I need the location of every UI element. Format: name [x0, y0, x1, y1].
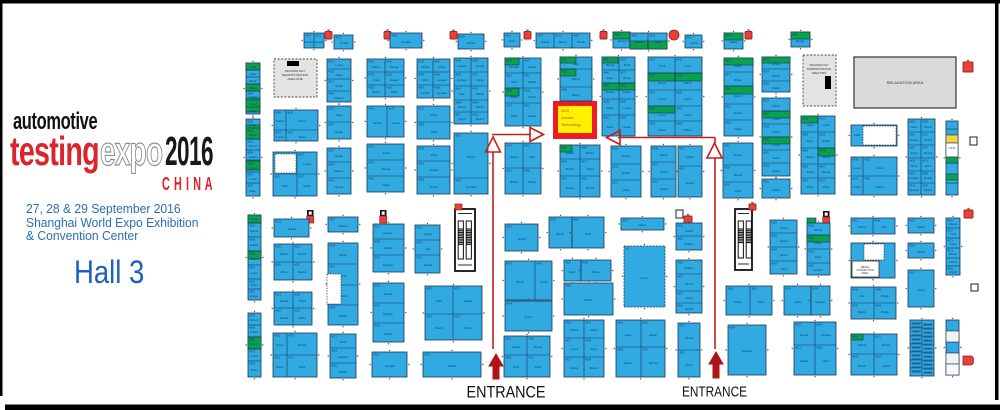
- svg-text:4051: 4051: [524, 73, 530, 77]
- svg-text:Pelmor: Pelmor: [772, 104, 781, 108]
- svg-text:4059: 4059: [771, 233, 777, 237]
- svg-text:Mersat: Mersat: [796, 39, 804, 43]
- svg-text:4081: 4081: [505, 336, 511, 340]
- svg-text:4049: 4049: [582, 260, 588, 264]
- svg-text:Mikota: Mikota: [448, 364, 456, 368]
- svg-text:Restek: Restek: [780, 239, 789, 243]
- svg-text:Lumet: Lumet: [303, 162, 311, 166]
- svg-text:4028: 4028: [550, 217, 556, 221]
- svg-text:4067: 4067: [506, 143, 512, 147]
- svg-text:Sintec: Sintec: [430, 113, 438, 117]
- svg-text:4024: 4024: [725, 86, 731, 90]
- svg-text:Ankor: Ankor: [606, 76, 613, 80]
- svg-text:4057: 4057: [328, 79, 334, 83]
- svg-text:Norel: Norel: [340, 340, 347, 344]
- svg-text:4089: 4089: [249, 325, 255, 329]
- svg-text:4062: 4062: [368, 176, 374, 180]
- svg-text:Mersat: Mersat: [734, 173, 742, 177]
- svg-text:4077: 4077: [649, 73, 655, 77]
- svg-text:4024: 4024: [763, 69, 769, 73]
- svg-text:4030: 4030: [506, 58, 512, 62]
- svg-text:Tivoli: Tivoli: [585, 232, 592, 236]
- svg-text:Dynatek: Dynatek: [466, 185, 477, 189]
- svg-text:4057: 4057: [328, 148, 334, 152]
- svg-text:Zhivan: Zhivan: [250, 217, 259, 221]
- svg-text:4061: 4061: [649, 90, 655, 94]
- svg-text:4032: 4032: [852, 303, 858, 307]
- svg-text:Ostrow: Ostrow: [800, 359, 809, 363]
- svg-text:4082: 4082: [603, 115, 609, 119]
- svg-text:4019: 4019: [472, 112, 478, 116]
- svg-text:4061: 4061: [763, 111, 769, 115]
- svg-text:4026: 4026: [555, 33, 561, 37]
- svg-text:4030: 4030: [455, 178, 461, 182]
- svg-text:4024: 4024: [676, 73, 682, 77]
- svg-text:4050: 4050: [802, 164, 808, 168]
- svg-text:Avantec: Avantec: [813, 268, 823, 272]
- svg-text:4078: 4078: [368, 72, 374, 76]
- svg-text:4051: 4051: [472, 86, 478, 90]
- svg-text:4085: 4085: [875, 287, 881, 291]
- svg-text:Kemlar: Kemlar: [339, 314, 348, 318]
- svg-text:Shanly: Shanly: [435, 326, 444, 330]
- svg-text:Ankor: Ankor: [684, 64, 691, 68]
- svg-text:4072: 4072: [612, 180, 618, 184]
- svg-text:4088: 4088: [455, 100, 461, 104]
- svg-text:4038: 4038: [585, 357, 591, 361]
- svg-text:Wolsen: Wolsen: [624, 361, 633, 365]
- svg-text:4074: 4074: [947, 238, 953, 242]
- svg-text:4002: 4002: [374, 303, 380, 307]
- svg-text:Ostrow: Ostrow: [384, 332, 393, 336]
- svg-text:Crastin: Crastin: [658, 97, 667, 101]
- svg-text:4020: 4020: [249, 361, 255, 365]
- svg-text:4046: 4046: [434, 72, 440, 76]
- svg-text:4004: 4004: [368, 59, 374, 63]
- svg-text:4045: 4045: [819, 116, 825, 120]
- svg-text:4087: 4087: [819, 164, 825, 168]
- svg-text:4040: 4040: [603, 70, 609, 74]
- svg-text:4009: 4009: [386, 85, 392, 89]
- svg-text:4032: 4032: [909, 218, 915, 222]
- svg-text:Dynatek: Dynatek: [383, 263, 394, 267]
- svg-text:4033: 4033: [565, 320, 571, 324]
- svg-text:4057: 4057: [328, 122, 334, 126]
- svg-text:4072: 4072: [679, 146, 685, 150]
- svg-text:4029: 4029: [763, 163, 769, 167]
- svg-text:Pelmor: Pelmor: [606, 90, 615, 94]
- svg-text:Ankor: Ankor: [949, 242, 956, 246]
- svg-text:4008: 4008: [802, 116, 808, 120]
- svg-text:Qintar: Qintar: [882, 364, 889, 368]
- svg-text:4078: 4078: [368, 144, 374, 148]
- svg-text:Qintar: Qintar: [686, 155, 693, 159]
- svg-text:Hintek: Hintek: [335, 130, 343, 134]
- svg-text:4082: 4082: [864, 157, 870, 161]
- svg-text:4083: 4083: [455, 133, 461, 137]
- svg-text:Shanly: Shanly: [528, 180, 537, 184]
- svg-text:Jinwei: Jinwei: [392, 121, 400, 125]
- svg-text:4067: 4067: [524, 58, 530, 62]
- svg-text:AREA: AREA: [861, 271, 868, 275]
- svg-text:Ostrow: Ostrow: [924, 188, 933, 192]
- svg-text:Velor: Velor: [881, 225, 887, 229]
- svg-text:Tarnow: Tarnow: [335, 185, 344, 189]
- svg-text:Brevik: Brevik: [635, 40, 643, 44]
- svg-text:Dovel: Dovel: [250, 102, 257, 106]
- svg-text:Brevik: Brevik: [622, 171, 630, 175]
- svg-text:4083: 4083: [418, 85, 424, 89]
- svg-text:4076: 4076: [426, 286, 432, 290]
- svg-text:4023: 4023: [454, 286, 460, 290]
- svg-text:4014: 4014: [455, 86, 461, 90]
- svg-text:Pelmor: Pelmor: [250, 318, 259, 322]
- svg-text:4004: 4004: [328, 91, 334, 95]
- svg-text:Norel: Norel: [795, 300, 802, 304]
- svg-text:Zhivan: Zhivan: [734, 78, 743, 82]
- svg-text:4068: 4068: [247, 119, 253, 123]
- svg-text:4038: 4038: [677, 260, 683, 264]
- svg-text:4086: 4086: [565, 283, 571, 287]
- svg-text:4045: 4045: [763, 137, 769, 141]
- svg-text:Pelmor: Pelmor: [584, 298, 593, 302]
- svg-text:Qintar: Qintar: [622, 188, 629, 192]
- svg-text:4045: 4045: [649, 106, 655, 110]
- svg-text:4017: 4017: [565, 338, 571, 342]
- svg-text:4007: 4007: [506, 261, 512, 265]
- svg-text:4001: 4001: [677, 223, 683, 227]
- svg-text:Dovel: Dovel: [685, 97, 692, 101]
- svg-text:4071: 4071: [819, 178, 825, 182]
- svg-text:4088: 4088: [506, 88, 512, 92]
- svg-text:4048: 4048: [816, 345, 822, 349]
- svg-text:4078: 4078: [388, 106, 394, 110]
- svg-text:4087: 4087: [294, 262, 300, 266]
- svg-text:4019: 4019: [524, 103, 530, 107]
- svg-text:4077: 4077: [725, 72, 731, 76]
- svg-text:Hintek: Hintek: [570, 366, 578, 370]
- svg-text:4064: 4064: [729, 325, 735, 329]
- svg-text:4050: 4050: [275, 262, 281, 266]
- svg-text:4035: 4035: [652, 146, 658, 150]
- svg-text:Pelmor: Pelmor: [250, 229, 259, 233]
- svg-text:Ostrow: Ostrow: [510, 155, 519, 159]
- svg-text:Restek: Restek: [421, 65, 430, 69]
- svg-text:Tarnow: Tarnow: [280, 299, 289, 303]
- svg-text:Hintek: Hintek: [303, 184, 311, 188]
- svg-text:Norel: Norel: [823, 185, 830, 189]
- svg-text:Kemlar: Kemlar: [384, 246, 393, 250]
- svg-text:Qintar: Qintar: [660, 170, 667, 174]
- svg-text:4041: 4041: [328, 178, 334, 182]
- svg-text:Ostrow: Ostrow: [467, 41, 476, 45]
- svg-text:Dynatek: Dynatek: [437, 91, 448, 95]
- svg-text:Brevik: Brevik: [566, 167, 574, 171]
- svg-text:4002: 4002: [909, 183, 915, 187]
- svg-text:4055: 4055: [922, 171, 928, 175]
- svg-text:Pelmor: Pelmor: [772, 74, 781, 78]
- svg-text:4036: 4036: [249, 337, 255, 341]
- svg-text:4055: 4055: [329, 305, 335, 309]
- svg-text:4059: 4059: [677, 303, 683, 307]
- svg-text:4072: 4072: [581, 159, 587, 163]
- svg-text:4039: 4039: [922, 183, 928, 187]
- svg-text:Hualon: Hualon: [566, 186, 575, 190]
- svg-text:Mikota: Mikota: [572, 77, 580, 81]
- svg-text:Dovel: Dovel: [773, 130, 780, 134]
- svg-text:4029: 4029: [922, 119, 928, 123]
- svg-text:4069: 4069: [909, 243, 915, 247]
- svg-text:4009: 4009: [418, 122, 424, 126]
- svg-text:4008: 4008: [763, 124, 769, 128]
- svg-text:4069: 4069: [852, 354, 858, 358]
- svg-text:4024: 4024: [603, 83, 609, 87]
- svg-text:Brevik: Brevik: [528, 95, 536, 99]
- svg-text:4069: 4069: [875, 303, 881, 307]
- svg-text:Norel: Norel: [781, 267, 788, 271]
- svg-text:Zhivan: Zhivan: [249, 79, 258, 83]
- svg-text:Avantec: Avantec: [457, 64, 467, 68]
- svg-text:4011: 4011: [852, 218, 858, 222]
- svg-text:Tivoli: Tivoli: [950, 232, 957, 236]
- svg-text:Tarnow: Tarnow: [373, 121, 382, 125]
- svg-text:Norel: Norel: [431, 153, 438, 157]
- svg-text:4025: 4025: [386, 72, 392, 76]
- svg-text:Tarnow: Tarnow: [822, 155, 831, 159]
- svg-text:4034: 4034: [294, 308, 300, 312]
- svg-text:Sarex: Sarex: [806, 139, 814, 143]
- svg-text:Shanly: Shanly: [586, 151, 595, 155]
- svg-text:4046: 4046: [455, 58, 461, 62]
- svg-text:4076: 4076: [416, 240, 422, 244]
- svg-text:4054: 4054: [585, 338, 591, 342]
- svg-text:4077: 4077: [763, 57, 769, 61]
- svg-text:4045: 4045: [852, 157, 858, 161]
- svg-text:Restek: Restek: [822, 170, 831, 174]
- svg-text:Lumet: Lumet: [335, 63, 343, 67]
- svg-text:Dovel: Dovel: [591, 328, 598, 332]
- svg-text:Sarex: Sarex: [335, 113, 343, 117]
- svg-text:4012: 4012: [528, 355, 534, 359]
- svg-text:Velor: Velor: [511, 80, 517, 84]
- svg-text:Ostrow: Ostrow: [528, 65, 537, 69]
- svg-text:Wolsen: Wolsen: [335, 169, 344, 173]
- svg-text:Dovel: Dovel: [639, 223, 646, 227]
- svg-text:Norel: Norel: [391, 90, 398, 94]
- svg-text:4008: 4008: [676, 90, 682, 94]
- svg-text:4080: 4080: [808, 263, 814, 267]
- svg-text:4082: 4082: [763, 150, 769, 154]
- svg-text:Tarnow: Tarnow: [298, 252, 307, 256]
- svg-text:4014: 4014: [524, 143, 530, 147]
- svg-text:Sintec: Sintec: [814, 241, 822, 245]
- svg-text:4066: 4066: [676, 121, 682, 125]
- svg-text:Crastin: Crastin: [250, 330, 259, 334]
- svg-text:Zhivan: Zhivan: [623, 76, 632, 80]
- svg-text:Sarex: Sarex: [876, 166, 884, 170]
- svg-text:4021: 4021: [315, 33, 321, 37]
- svg-text:4013: 4013: [819, 148, 825, 152]
- svg-text:4039: 4039: [374, 323, 380, 327]
- svg-text:Jinwei: Jinwei: [910, 151, 918, 155]
- svg-text:4085: 4085: [852, 334, 858, 338]
- svg-text:4055: 4055: [374, 283, 380, 287]
- svg-text:Qintar: Qintar: [917, 288, 924, 292]
- svg-text:4047: 4047: [725, 33, 731, 37]
- svg-text:4116: 4116: [854, 133, 861, 137]
- svg-text:Kemlar: Kemlar: [430, 185, 439, 189]
- svg-text:Zhivan: Zhivan: [658, 81, 667, 85]
- svg-text:Norel: Norel: [758, 300, 765, 304]
- svg-text:4009: 4009: [561, 109, 569, 113]
- svg-text:Mersat: Mersat: [949, 222, 957, 226]
- svg-text:4010: 4010: [686, 35, 692, 39]
- svg-text:Crastin: Crastin: [276, 119, 285, 123]
- svg-text:Norel: Norel: [422, 78, 429, 82]
- svg-text:4029: 4029: [819, 132, 825, 136]
- svg-text:Mikota: Mikota: [528, 80, 536, 84]
- svg-text:Velor: Velor: [436, 299, 442, 303]
- svg-text:Avantec: Avantec: [909, 176, 919, 180]
- svg-text:4062: 4062: [368, 85, 374, 89]
- svg-text:4088: 4088: [581, 145, 587, 149]
- svg-text:Lumet: Lumet: [853, 166, 861, 170]
- svg-text:4077: 4077: [620, 70, 626, 74]
- svg-text:4035: 4035: [561, 159, 567, 163]
- svg-text:Restek: Restek: [298, 270, 307, 274]
- svg-text:4088: 4088: [612, 146, 618, 150]
- svg-text:4052: 4052: [249, 223, 255, 227]
- svg-text:4050: 4050: [274, 333, 280, 337]
- svg-text:Ostrow: Ostrow: [476, 78, 485, 82]
- svg-text:Dynatek: Dynatek: [383, 312, 394, 316]
- svg-text:Hualon: Hualon: [686, 181, 695, 185]
- svg-text:Brevik: Brevik: [858, 364, 866, 368]
- svg-text:4061: 4061: [725, 104, 731, 108]
- svg-text:4038: 4038: [677, 236, 683, 240]
- svg-text:Ankor: Ankor: [249, 72, 256, 76]
- svg-text:4022: 4022: [679, 350, 685, 354]
- svg-text:Hualon: Hualon: [660, 187, 669, 191]
- svg-text:Shanly: Shanly: [559, 40, 568, 44]
- svg-text:Qintar: Qintar: [654, 40, 661, 44]
- svg-text:Wolsen: Wolsen: [685, 242, 694, 246]
- svg-text:4082: 4082: [909, 119, 915, 123]
- svg-text:Velor: Velor: [459, 92, 465, 96]
- svg-text:Zhivan: Zhivan: [772, 62, 781, 66]
- svg-text:Hintek: Hintek: [335, 154, 343, 158]
- svg-text:4056: 4056: [603, 57, 609, 61]
- svg-text:Tivoli: Tivoli: [735, 189, 742, 193]
- svg-text:Hualon: Hualon: [730, 40, 739, 44]
- svg-text:4062: 4062: [434, 59, 440, 63]
- svg-text:4006: 4006: [727, 286, 733, 290]
- svg-text:4043: 4043: [808, 249, 814, 253]
- svg-text:Velor: Velor: [573, 62, 579, 66]
- svg-text:4021: 4021: [335, 35, 341, 39]
- svg-text:Restek: Restek: [924, 151, 933, 155]
- svg-text:Wolsen: Wolsen: [685, 266, 694, 270]
- svg-text:4066: 4066: [275, 244, 281, 248]
- svg-text:4075: 4075: [642, 347, 648, 351]
- svg-text:4089: 4089: [247, 91, 253, 95]
- svg-text:4019: 4019: [679, 166, 685, 170]
- svg-text:4073: 4073: [328, 59, 334, 63]
- svg-text:4025: 4025: [418, 59, 424, 63]
- svg-text:4048: 4048: [874, 218, 880, 222]
- svg-text:4059: 4059: [808, 223, 814, 227]
- svg-text:Sintec: Sintec: [806, 185, 814, 189]
- svg-text:Crastin: Crastin: [949, 270, 958, 274]
- svg-text:Lumet: Lumet: [250, 354, 258, 358]
- svg-text:4089: 4089: [247, 150, 253, 154]
- svg-text:Kemlar: Kemlar: [421, 91, 430, 95]
- svg-text:4009: 4009: [418, 72, 424, 76]
- svg-text:Sarex: Sarex: [249, 189, 257, 193]
- svg-text:4089: 4089: [275, 110, 281, 114]
- svg-text:Jinwei: Jinwei: [276, 343, 284, 347]
- svg-text:4028: 4028: [528, 336, 534, 340]
- svg-text:Mikota: Mikota: [510, 180, 518, 184]
- svg-text:Restek: Restek: [685, 307, 694, 311]
- svg-text:Restek: Restek: [339, 224, 348, 228]
- svg-text:4026: 4026: [614, 32, 620, 36]
- svg-text:4035: 4035: [524, 88, 530, 92]
- svg-text:4041: 4041: [368, 106, 374, 110]
- svg-text:Sarex: Sarex: [772, 156, 780, 160]
- svg-text:4008: 4008: [603, 99, 609, 103]
- svg-text:Dovel: Dovel: [250, 166, 257, 170]
- svg-text:Hintek: Hintek: [772, 169, 780, 173]
- svg-text:4012: 4012: [565, 260, 571, 264]
- svg-text:Ostrow: Ostrow: [424, 232, 433, 236]
- svg-text:Lumet: Lumet: [623, 106, 631, 110]
- svg-text:Sintec: Sintec: [780, 253, 788, 257]
- svg-text:Tarnow: Tarnow: [924, 138, 933, 142]
- svg-text:4042: 4042: [505, 33, 511, 37]
- svg-text:Jinwei: Jinwei: [780, 226, 788, 230]
- svg-text:Sintec: Sintec: [734, 300, 742, 304]
- svg-text:4044: 4044: [536, 261, 542, 265]
- svg-text:4073: 4073: [275, 130, 281, 134]
- svg-text:Tarnow: Tarnow: [685, 282, 694, 286]
- svg-text:4062: 4062: [418, 106, 424, 110]
- svg-text:Hintek: Hintek: [853, 185, 861, 189]
- svg-text:4067: 4067: [472, 72, 478, 76]
- svg-text:4043: 4043: [771, 261, 777, 265]
- svg-text:4008: 4008: [725, 120, 731, 124]
- svg-text:4016: 4016: [875, 354, 881, 358]
- svg-text:Sarex: Sarex: [298, 135, 306, 139]
- svg-text:Mersat: Mersat: [556, 232, 564, 236]
- svg-text:4020: 4020: [274, 174, 280, 178]
- svg-text:Shanly: Shanly: [518, 237, 527, 241]
- svg-text:4020: 4020: [328, 106, 334, 110]
- svg-text:4082: 4082: [802, 132, 808, 136]
- svg-text:4072: 4072: [506, 103, 512, 107]
- svg-text:Crastin: Crastin: [772, 188, 781, 192]
- svg-text:Lumet: Lumet: [249, 109, 257, 113]
- svg-text:4023: 4023: [424, 352, 430, 356]
- svg-text:ENTRANCE: ENTRANCE: [467, 384, 546, 402]
- svg-text:4084: 4084: [792, 32, 798, 36]
- svg-text:Sintec: Sintec: [372, 90, 380, 94]
- svg-text:Sarex: Sarex: [250, 368, 258, 372]
- svg-text:4065: 4065: [505, 355, 511, 359]
- svg-text:Jinwei: Jinwei: [806, 170, 814, 174]
- svg-text:4029: 4029: [852, 176, 858, 180]
- svg-text:4036: 4036: [247, 161, 253, 165]
